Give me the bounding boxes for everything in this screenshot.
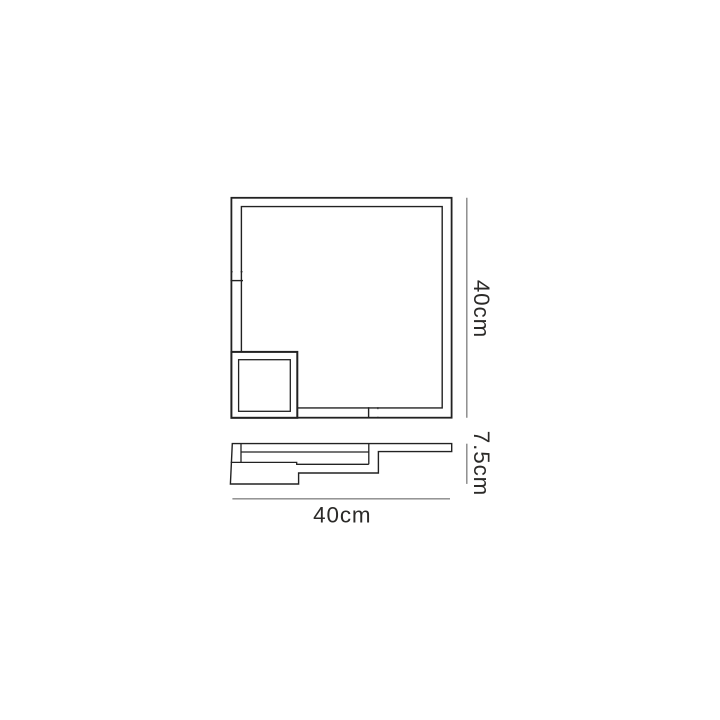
svg-text:7.5cm: 7.5cm	[469, 431, 494, 496]
svg-text:40cm: 40cm	[313, 502, 371, 527]
svg-text:40cm: 40cm	[469, 280, 494, 338]
